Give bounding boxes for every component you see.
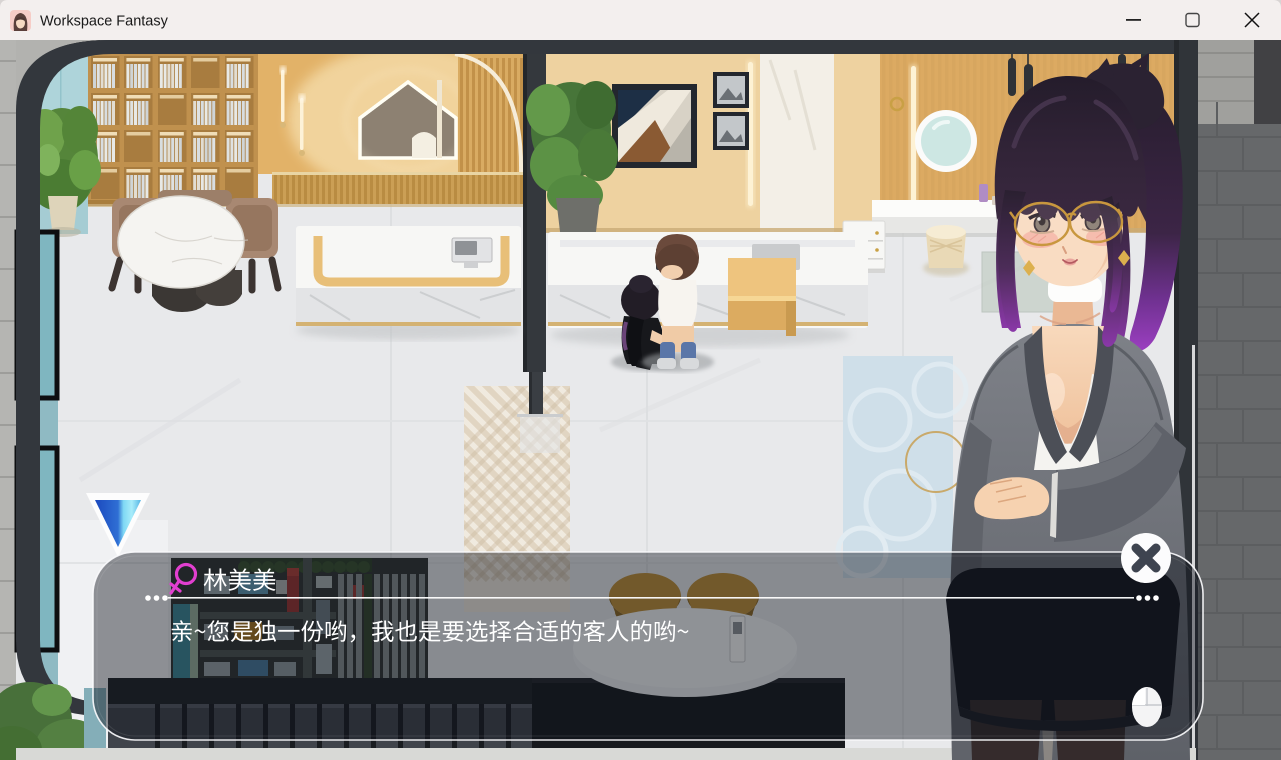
svg-text:Workspace Fantasy: Workspace Fantasy	[40, 14, 169, 30]
